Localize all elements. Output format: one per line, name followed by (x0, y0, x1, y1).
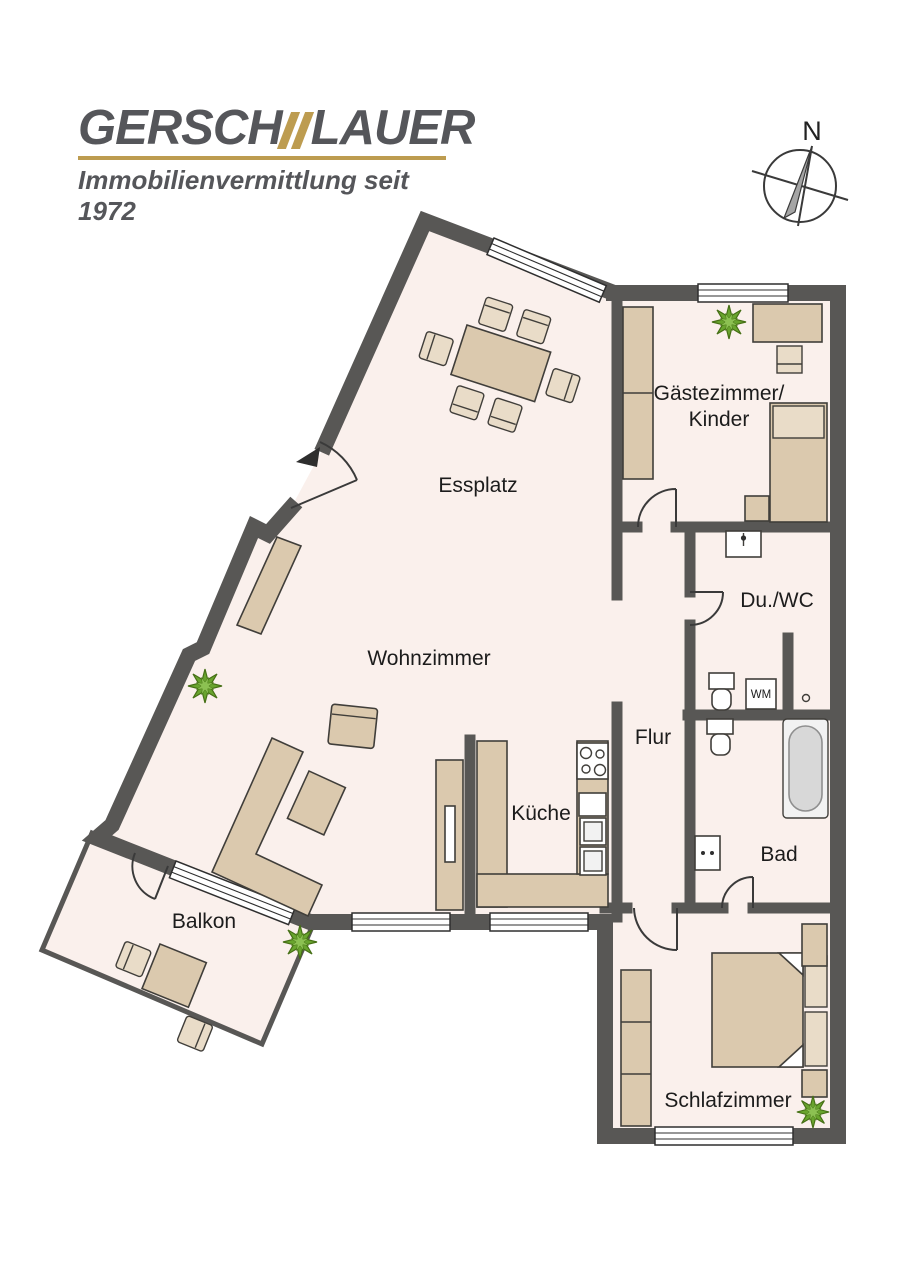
stove-icon (577, 743, 608, 779)
bathtub-icon (783, 719, 828, 818)
single-bed (770, 403, 827, 522)
desk-chair (777, 346, 802, 373)
oven-icon (580, 847, 606, 875)
room-label-kinder: Kinder (689, 408, 750, 431)
tv-icon (445, 806, 455, 862)
nightstand (745, 496, 769, 521)
plant-icon (283, 925, 317, 959)
window-gaestezimmer (698, 284, 788, 302)
window-schlafzimmer (655, 1127, 793, 1145)
washing-machine-label: WM (751, 689, 771, 701)
pillow (805, 1012, 827, 1066)
toilet-du-wc (709, 673, 734, 710)
plant-icon (712, 305, 746, 339)
dishwasher-icon (580, 818, 606, 845)
window-wohnzimmer (352, 913, 450, 931)
plant-icon (188, 669, 222, 703)
window-kueche (490, 913, 588, 931)
wardrobe-gaestezimmer (623, 307, 653, 479)
armchair (328, 704, 378, 749)
compass-north-label: N (802, 116, 822, 146)
sink-bad (695, 836, 720, 870)
desk (753, 304, 822, 342)
room-label-gaestezimmer: Gästezimmer/ (654, 382, 785, 405)
nightstand (802, 1070, 827, 1097)
washing-machine: WM (746, 679, 776, 709)
room-label-essplatz: Essplatz (438, 474, 517, 497)
floor-plan: WM (0, 0, 920, 1282)
compass-icon: N (752, 116, 848, 226)
room-label-kueche: Küche (511, 802, 571, 825)
room-label-flur: Flur (635, 726, 671, 749)
sink-du-wc (726, 531, 761, 557)
wardrobe-schlafzimmer (621, 970, 651, 1126)
room-label-schlafzimmer: Schlafzimmer (664, 1089, 791, 1112)
tv-cabinet (436, 760, 463, 910)
room-label-du-wc: Du./WC (740, 589, 814, 612)
room-label-wohnzimmer: Wohnzimmer (367, 647, 490, 670)
kitchen-sink (579, 793, 606, 816)
plant-icon (797, 1096, 829, 1128)
room-label-bad: Bad (760, 843, 797, 866)
nightstand (802, 924, 827, 966)
room-label-balkon: Balkon (172, 910, 236, 933)
